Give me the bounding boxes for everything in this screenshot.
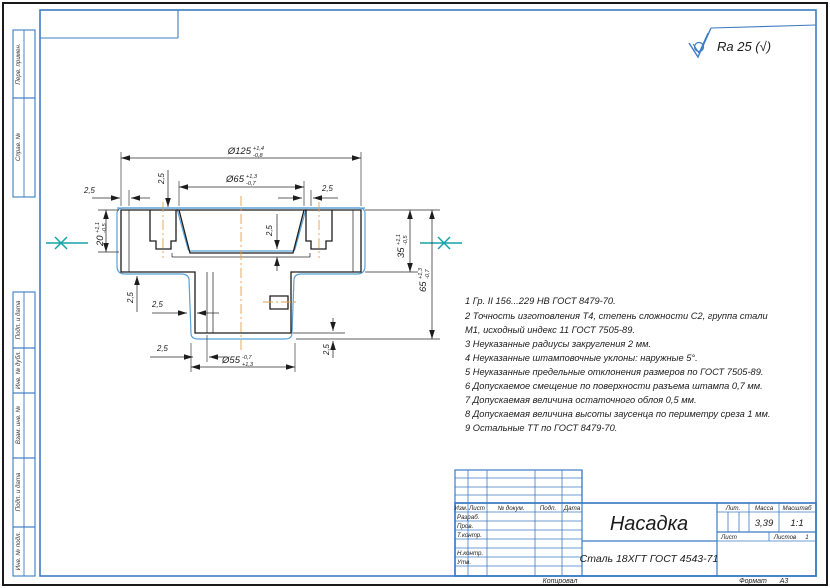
tr-line: 4 Неуказанные штамповочные уклоны: наруж… <box>465 353 698 363</box>
tr-line: 1 Гр. II 156...229 НВ ГОСТ 8479-70. <box>465 296 616 306</box>
tb-label-podp: Подп. <box>540 505 556 512</box>
tb-label-nkontr: Н.контр. <box>457 550 483 557</box>
dim-allow-left-od: 2,5 <box>83 186 96 195</box>
tb-label-ndok: № докум. <box>497 505 524 512</box>
svg-text:+1,1: +1,1 <box>396 234 402 245</box>
margin-label-podp-data-1: Подп. и дата <box>15 300 22 339</box>
svg-text:Ø65: Ø65 <box>225 174 245 185</box>
svg-text:-0,5: -0,5 <box>102 222 108 233</box>
part-name: Насадка <box>610 513 688 535</box>
tr-line: М1, исходный индекс 11 ГОСТ 7505-89. <box>465 325 635 335</box>
dim-allow-stem-2: 2,5 <box>156 344 169 353</box>
tb-label-data: Дата <box>563 505 581 512</box>
dim-allow-right-cavity: 2,5 <box>321 184 334 193</box>
tb-label-list2: Лист <box>720 534 737 541</box>
footer-kopiroval: Копировал <box>543 578 578 585</box>
part-material: Сталь 18ХГТ ГОСТ 4543-71 <box>580 553 719 565</box>
tr-line: 3 Неуказанные радиусы закругления 2 мм. <box>465 339 651 349</box>
dim-allow-stem-bottom: 2,5 <box>322 343 331 356</box>
tb-scale-value: 1:1 <box>790 518 803 529</box>
svg-text:+1,3: +1,3 <box>242 362 254 368</box>
dim-allow-floor: 2,5 <box>265 224 274 237</box>
svg-text:20: 20 <box>95 235 106 247</box>
tb-label-tkontr: Т.контр. <box>457 532 482 539</box>
tb-label-listov: Листов <box>773 534 797 541</box>
margin-label-inv-dubl: Инв. № дубл. <box>15 351 22 389</box>
tb-label-prov: Пров. <box>457 523 473 530</box>
roughness-label: Ra 25 (√) <box>717 39 771 54</box>
drawing-canvas: Перв. примен. Справ. № Подп. и дата Инв.… <box>0 0 830 588</box>
svg-text:Ø125: Ø125 <box>227 146 252 157</box>
tb-label-masshtab: Масштаб <box>783 505 812 512</box>
footer-format: Формат <box>739 578 767 585</box>
svg-text:+1,3: +1,3 <box>246 174 258 180</box>
svg-text:65: 65 <box>418 281 429 292</box>
svg-text:-0,7: -0,7 <box>425 268 431 279</box>
svg-text:+1,3: +1,3 <box>418 267 424 279</box>
margin-label-inv-podl: Инв. № подл. <box>15 532 22 570</box>
svg-text:-0,8: -0,8 <box>253 153 264 159</box>
tb-label-izm: Изм. <box>454 505 467 512</box>
tb-label-razrab: Разраб. <box>457 514 479 521</box>
tr-line: 2 Точность изготовления Т4, степень слож… <box>464 311 768 321</box>
dim-allow-slot: 2,5 <box>157 172 166 185</box>
svg-text:35: 35 <box>396 247 407 258</box>
tr-line: 6 Допускаемое смещение по поверхности ра… <box>465 381 763 391</box>
margin-label-perv-primen: Перв. примен. <box>15 43 22 84</box>
dim-allow-stem-1: 2,5 <box>151 300 164 309</box>
tr-line: 8 Допускаемая величина высоты заусенца п… <box>465 409 771 419</box>
tb-mass-value: 3,39 <box>755 518 774 529</box>
svg-text:+1,1: +1,1 <box>95 222 101 233</box>
dim-allow-flange-bottom: 2,5 <box>126 291 135 304</box>
tb-label-massa: Масса <box>755 505 774 512</box>
tb-label-utv: Утв. <box>456 559 471 566</box>
tb-label-lit: Лит. <box>725 505 741 512</box>
svg-text:-0,7: -0,7 <box>242 355 253 361</box>
drawing-sheet: Перв. примен. Справ. № Подп. и дата Инв.… <box>0 0 830 588</box>
tr-line: 9 Остальные ТТ по ГОСТ 8479-70. <box>465 423 617 433</box>
margin-label-podp-data-2: Подп. и дата <box>15 472 22 511</box>
tb-sheets-value: 1 <box>805 534 808 541</box>
tb-label-list: Лист <box>468 505 485 512</box>
tr-line: 5 Неуказанные предельные отклонения разм… <box>465 367 763 377</box>
margin-label-vzam-inv: Взам. инв. № <box>15 406 22 445</box>
margin-label-sprav-no: Справ. № <box>15 133 22 161</box>
svg-text:+1,4: +1,4 <box>253 146 264 152</box>
tr-line: 7 Допускаемая величина остаточного облоя… <box>465 395 697 405</box>
svg-text:-0,5: -0,5 <box>403 234 409 245</box>
footer-format-value: А3 <box>779 578 789 585</box>
svg-text:-0,7: -0,7 <box>246 181 257 187</box>
